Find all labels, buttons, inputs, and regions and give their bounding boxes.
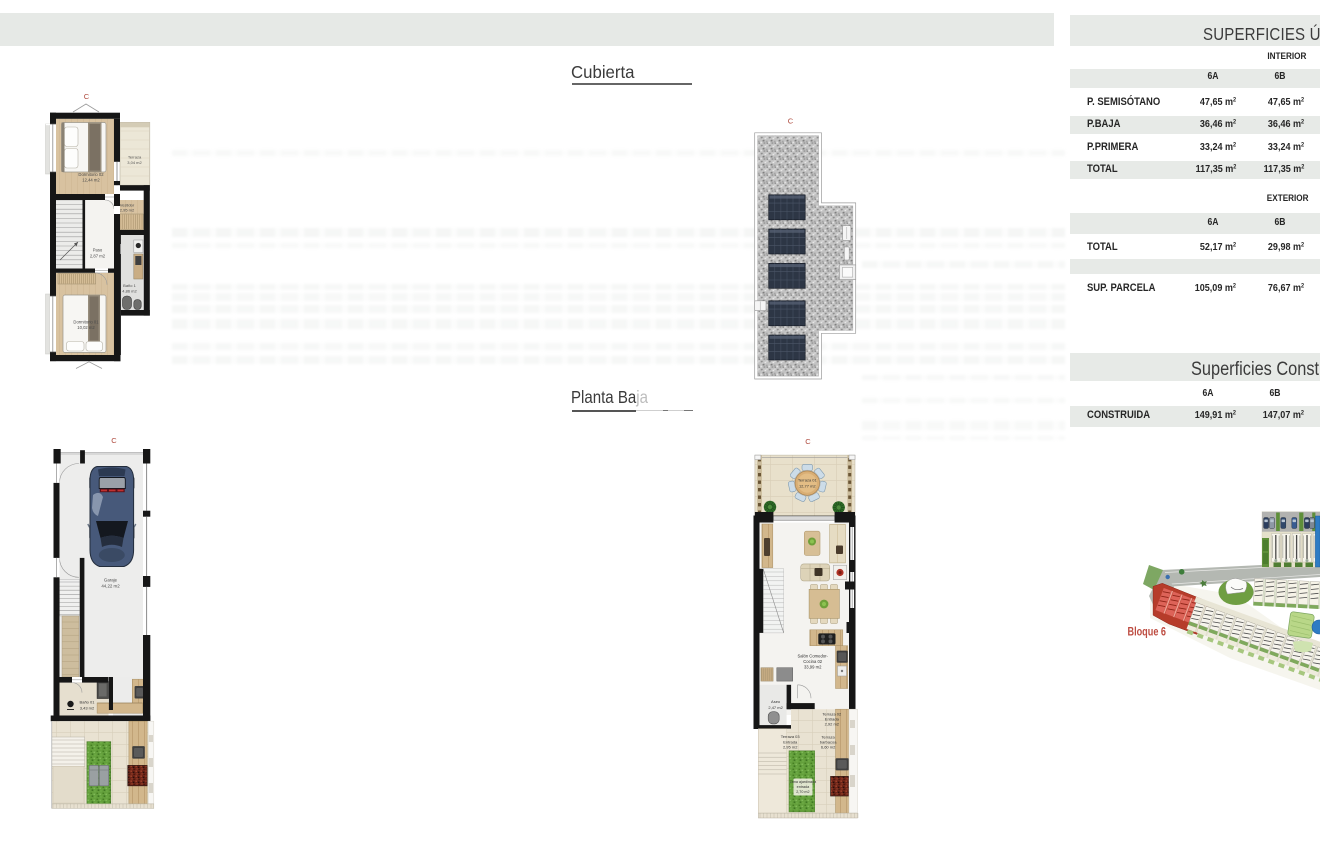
svg-text:12,77 m2: 12,77 m2 <box>799 484 816 489</box>
svg-text:Terraza 03: Terraza 03 <box>781 734 801 739</box>
svg-text:10,02 m2: 10,02 m2 <box>77 325 95 330</box>
svg-text:2,95 m2: 2,95 m2 <box>783 745 798 750</box>
svg-text:Baño 01: Baño 01 <box>80 700 96 705</box>
svg-text:C: C <box>788 117 794 126</box>
svg-text:entrada: entrada <box>797 785 810 789</box>
svg-text:2,95 m2: 2,95 m2 <box>120 208 135 213</box>
svg-text:C: C <box>111 436 117 445</box>
svg-text:33,99 m2: 33,99 m2 <box>804 665 822 670</box>
svg-text:6,60 m2: 6,60 m2 <box>821 745 836 750</box>
svg-text:Terraza 01: Terraza 01 <box>798 478 818 483</box>
svg-text:2,47 m2: 2,47 m2 <box>768 705 783 710</box>
svg-text:Cocina 02: Cocina 02 <box>803 659 823 664</box>
svg-text:3,04 m2: 3,04 m2 <box>127 160 142 165</box>
svg-text:Zona ajardinada: Zona ajardinada <box>790 780 818 784</box>
svg-text:2,92 m2: 2,92 m2 <box>825 722 840 727</box>
svg-text:Bloque 6: Bloque 6 <box>1128 627 1167 639</box>
svg-text:3,43 m2: 3,43 m2 <box>80 706 95 711</box>
svg-text:2,87 m2: 2,87 m2 <box>90 254 106 259</box>
svg-text:Aseo: Aseo <box>771 699 781 704</box>
svg-text:Baño 1: Baño 1 <box>123 283 136 288</box>
svg-text:C: C <box>805 437 811 446</box>
svg-text:Garaje: Garaje <box>104 578 118 583</box>
svg-text:12,44 m2: 12,44 m2 <box>82 178 100 183</box>
svg-text:4,86 m2: 4,86 m2 <box>122 289 137 294</box>
svg-text:Dormitorio 02: Dormitorio 02 <box>78 172 104 177</box>
svg-text:C: C <box>84 92 90 101</box>
svg-text:Dormitorio 01: Dormitorio 01 <box>73 320 99 325</box>
svg-text:2,70 m2: 2,70 m2 <box>796 790 809 794</box>
svg-text:Paso: Paso <box>93 248 103 253</box>
svg-text:Terraza: Terraza <box>128 155 142 160</box>
svg-text:44,22 m2: 44,22 m2 <box>101 584 120 589</box>
svg-text:Salón Comedor-: Salón Comedor- <box>797 654 828 659</box>
